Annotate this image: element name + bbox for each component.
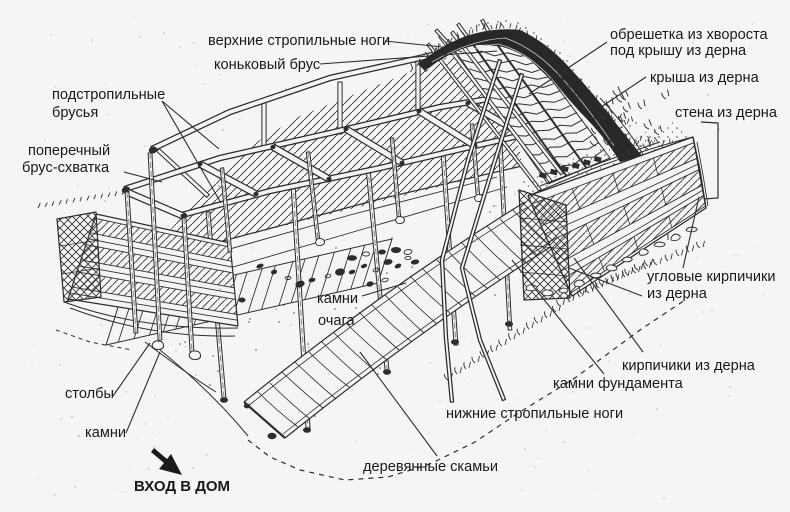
svg-text:кирпичики из дерна: кирпичики из дерна [622, 358, 756, 374]
svg-text:камни: камни [317, 291, 358, 307]
svg-text:под крышу из дерна: под крышу из дерна [610, 43, 747, 59]
svg-text:камни фундамента: камни фундамента [553, 376, 684, 392]
svg-text:подстропильные: подстропильные [52, 87, 165, 103]
svg-text:угловые кирпичики: угловые кирпичики [647, 269, 776, 285]
svg-text:ВХОД В ДОМ: ВХОД В ДОМ [134, 478, 230, 495]
svg-text:поперечный: поперечный [28, 143, 110, 159]
svg-text:коньковый брус: коньковый брус [214, 57, 320, 73]
svg-text:брус-схватка: брус-схватка [22, 160, 110, 176]
svg-text:обрешетка из хвороста: обрешетка из хвороста [610, 27, 769, 43]
svg-text:стена из дерна: стена из дерна [675, 105, 778, 121]
svg-text:брусья: брусья [52, 105, 98, 121]
svg-text:верхние стропильные ноги: верхние стропильные ноги [208, 33, 390, 49]
svg-text:из дерна: из дерна [647, 286, 708, 302]
svg-text:столбы: столбы [65, 386, 114, 402]
svg-text:нижние стропильные ноги: нижние стропильные ноги [446, 406, 623, 422]
svg-text:камни: камни [85, 425, 126, 441]
svg-text:деревянные скамьи: деревянные скамьи [363, 459, 498, 475]
svg-text:крыша из дерна: крыша из дерна [650, 70, 760, 86]
svg-text:очага: очага [318, 313, 356, 329]
